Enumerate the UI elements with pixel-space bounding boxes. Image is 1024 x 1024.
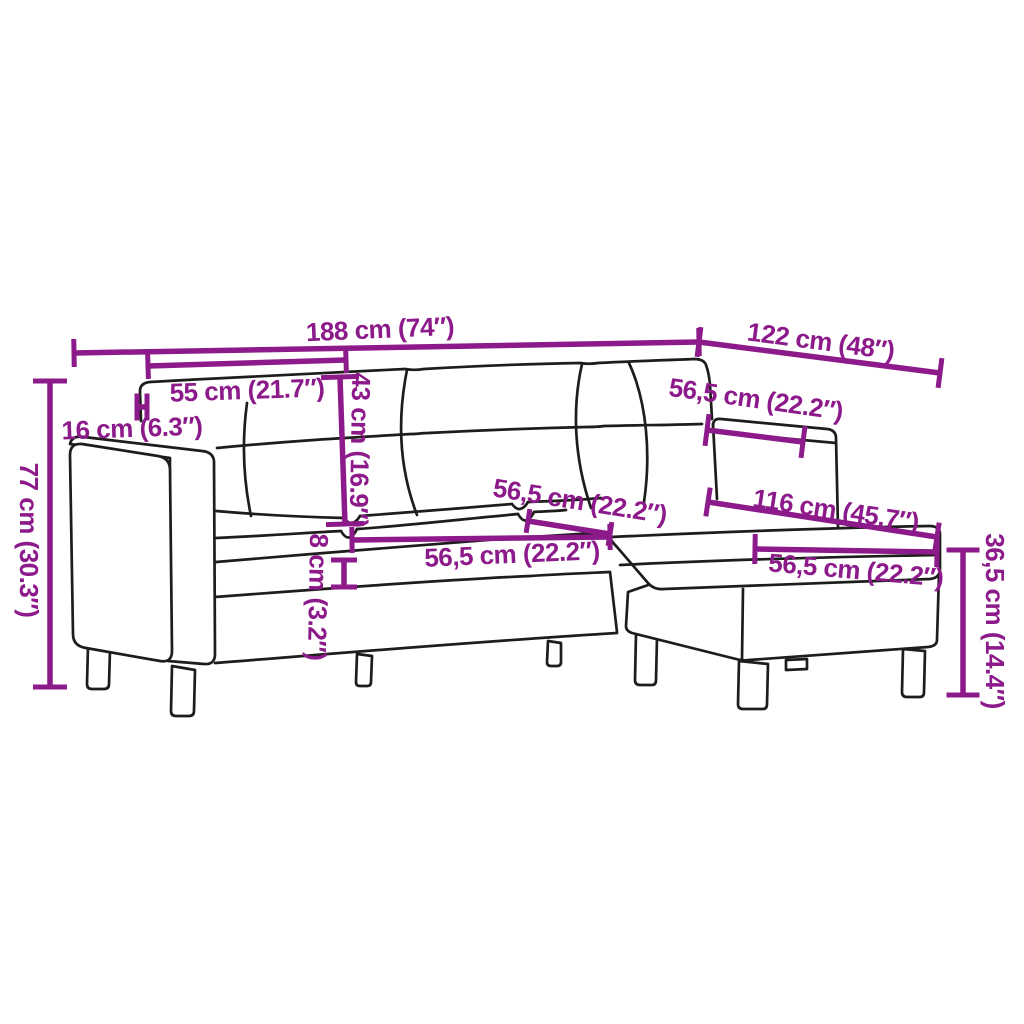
- back-cushion-seam-1: [244, 403, 251, 516]
- dimension-tick-start-seat-depth: [526, 509, 530, 533]
- backrest-mid-seam: [217, 424, 702, 448]
- dimension-label-back-cushion-width: 55 cm (21.7″): [169, 372, 325, 407]
- dimension-right-backrest-width: 56,5 cm (22.2″): [667, 372, 845, 458]
- footstool-leg-right: [902, 649, 925, 697]
- dimension-tick-end-right-backrest-width: [801, 426, 805, 458]
- dimension-label-armrest-width: 16 cm (6.3″): [61, 411, 203, 446]
- dimension-footstool-height: 36,5 cm (14.4″): [947, 533, 1011, 709]
- sofa-left-armrest: [70, 437, 215, 716]
- dimension-label-seat-depth: 56,5 cm (22.2″): [491, 472, 669, 529]
- dimension-line-back-cushion-width: [148, 360, 346, 366]
- dimension-label-backrest-height: 43 cm (16.9″): [344, 372, 377, 527]
- back-cushion-seam-2: [401, 370, 417, 515]
- dimension-label-right-backrest-width: 56,5 cm (22.2″): [667, 372, 845, 426]
- dimension-overall-height: 77 cm (30.3″): [14, 381, 67, 687]
- back-cushion-seam-4: [629, 363, 647, 502]
- dimension-label-seat-width: 56,5 cm (22.2″): [424, 535, 601, 573]
- front-rail-top-edge: [215, 572, 610, 597]
- seat-valley-1: [341, 529, 357, 538]
- footstool-base-corner-edge: [742, 589, 743, 659]
- dimension-label-footstool-height: 36,5 cm (14.4″): [980, 533, 1010, 709]
- dimension-tick-start-right-backrest-width: [705, 414, 709, 446]
- right-armrest-left-edge: [713, 424, 717, 499]
- dimension-tick-start-footstool-length: [706, 488, 710, 517]
- sofa-front-leg-1: [356, 654, 372, 686]
- dimension-tick-end-overall-depth: [938, 358, 942, 388]
- dimension-overall-depth: 122 cm (48″): [697, 316, 942, 387]
- dimension-label-overall-width: 188 cm (74″): [305, 311, 454, 347]
- dimension-label-overall-height: 77 cm (30.3″): [14, 463, 44, 618]
- footstool-leg-left: [635, 634, 657, 685]
- footstool-leg-back: [786, 659, 807, 670]
- dimension-backrest-height: 43 cm (16.9″): [321, 372, 376, 527]
- dimension-tick-end-back-cushion-width: [346, 347, 347, 373]
- dimension-label-seat-cushion-thickness: 8 cm (3.2″): [302, 533, 334, 660]
- left-armrest-leg-back: [171, 666, 195, 716]
- dimension-overall-width: 188 cm (74″): [74, 311, 699, 367]
- footstool-leg-front: [738, 661, 768, 709]
- dimension-seat-cushion-thickness: 8 cm (3.2″): [302, 533, 357, 660]
- dimension-diagram: 188 cm (74″)122 cm (48″)55 cm (21.7″)43 …: [0, 0, 1024, 1024]
- dimension-back-cushion-width: 55 cm (21.7″): [148, 347, 347, 408]
- diagram-svg: 188 cm (74″)122 cm (48″)55 cm (21.7″)43 …: [0, 0, 1024, 1024]
- left-armrest-outer-panel: [70, 444, 172, 661]
- sofa-front-leg-2: [547, 641, 561, 666]
- front-rail-right-edge: [610, 572, 617, 632]
- dimension-line-right-backrest-width: [707, 430, 803, 442]
- dimension-line-seat-depth: [528, 521, 610, 534]
- dimension-tick-start-back-cushion-width: [148, 353, 149, 379]
